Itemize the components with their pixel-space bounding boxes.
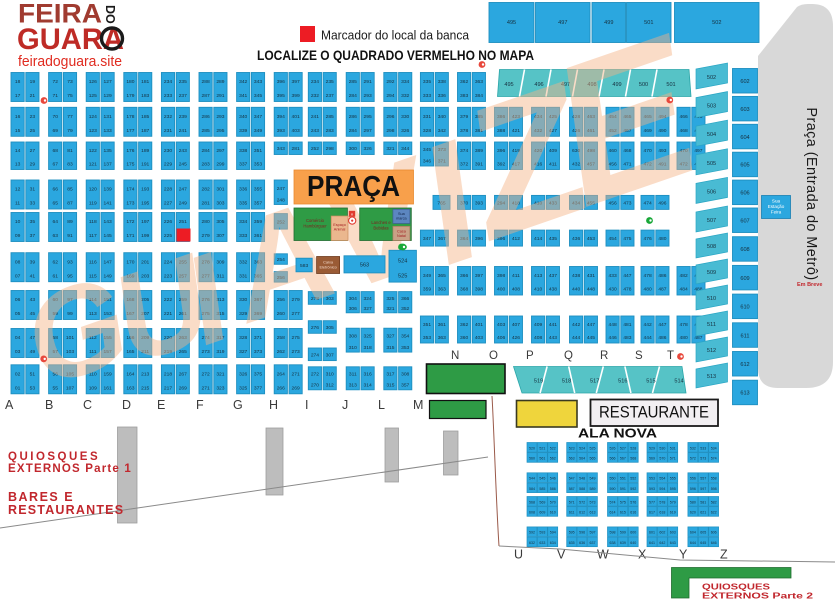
svg-text:Espaço: Espaço — [333, 223, 346, 227]
svg-text:70: 70 — [52, 114, 58, 120]
svg-text:Estação: Estação — [768, 204, 785, 209]
svg-text:617: 617 — [649, 511, 655, 515]
svg-text:195: 195 — [141, 201, 149, 207]
svg-text:317: 317 — [386, 372, 394, 378]
svg-text:610: 610 — [550, 511, 556, 515]
svg-text:13: 13 — [15, 161, 21, 167]
svg-text:289: 289 — [216, 79, 224, 85]
svg-text:33: 33 — [30, 201, 36, 207]
svg-text:633: 633 — [539, 541, 545, 545]
svg-text:443: 443 — [549, 335, 557, 341]
svg-text:233: 233 — [164, 93, 172, 99]
svg-text:604: 604 — [690, 531, 696, 535]
svg-text:360: 360 — [460, 335, 468, 341]
svg-text:393: 393 — [277, 128, 285, 134]
svg-text:547: 547 — [569, 477, 575, 481]
svg-text:401: 401 — [475, 322, 483, 328]
svg-text:Eletrônico: Eletrônico — [319, 264, 336, 269]
svg-text:Sua: Sua — [772, 199, 781, 204]
svg-text:282: 282 — [202, 187, 210, 193]
svg-text:546: 546 — [550, 477, 556, 481]
svg-text:339: 339 — [239, 128, 247, 134]
svg-text:586: 586 — [550, 487, 556, 491]
svg-text:296: 296 — [386, 114, 394, 120]
svg-text:514: 514 — [674, 379, 683, 385]
svg-text:126: 126 — [89, 79, 97, 85]
svg-text:RESTAURANTES: RESTAURANTES — [8, 503, 124, 517]
svg-text:636: 636 — [579, 541, 585, 545]
svg-text:269: 269 — [292, 385, 300, 391]
svg-text:512: 512 — [707, 348, 716, 354]
svg-text:273: 273 — [292, 349, 300, 355]
svg-text:431: 431 — [587, 273, 595, 279]
svg-text:603: 603 — [740, 107, 749, 113]
svg-text:503: 503 — [707, 104, 716, 110]
svg-text:118: 118 — [89, 219, 97, 225]
svg-text:309: 309 — [216, 259, 224, 265]
svg-text:Natal: Natal — [397, 234, 406, 238]
svg-text:409: 409 — [534, 322, 542, 328]
svg-text:645: 645 — [700, 541, 706, 545]
svg-text:528: 528 — [630, 446, 636, 450]
svg-text:621: 621 — [700, 511, 706, 515]
svg-text:124: 124 — [89, 114, 97, 120]
svg-text:522: 522 — [550, 446, 556, 450]
svg-text:01: 01 — [15, 385, 21, 391]
svg-text:87: 87 — [67, 201, 73, 207]
svg-text:599: 599 — [620, 531, 626, 535]
svg-text:349: 349 — [254, 128, 262, 134]
svg-text:12: 12 — [15, 187, 21, 193]
svg-text:284: 284 — [349, 128, 357, 134]
svg-text:J: J — [342, 398, 348, 412]
svg-text:521: 521 — [539, 446, 545, 450]
svg-text:11: 11 — [15, 201, 20, 207]
svg-text:285: 285 — [326, 114, 334, 120]
svg-text:266: 266 — [277, 385, 285, 391]
svg-text:P: P — [526, 350, 534, 362]
svg-text:569: 569 — [539, 500, 545, 504]
svg-text:66: 66 — [52, 187, 58, 193]
svg-text:571: 571 — [670, 457, 676, 461]
svg-text:69: 69 — [52, 128, 58, 134]
svg-text:481: 481 — [623, 322, 631, 328]
svg-text:181: 181 — [141, 79, 149, 85]
svg-text:577: 577 — [649, 500, 655, 504]
svg-text:353: 353 — [401, 345, 409, 351]
svg-text:243: 243 — [179, 148, 187, 154]
svg-text:139: 139 — [104, 187, 112, 193]
svg-text:632: 632 — [529, 541, 535, 545]
svg-text:311: 311 — [349, 372, 357, 378]
svg-text:270: 270 — [311, 383, 319, 389]
svg-text:D: D — [122, 398, 131, 412]
svg-text:480: 480 — [644, 287, 652, 293]
svg-text:I: I — [305, 398, 308, 412]
svg-text:Comércio: Comércio — [306, 218, 325, 223]
svg-text:480: 480 — [658, 236, 666, 242]
svg-text:264: 264 — [277, 372, 285, 378]
svg-text:603: 603 — [670, 531, 676, 535]
svg-text:601: 601 — [649, 531, 655, 535]
svg-text:DO: DO — [103, 5, 117, 24]
svg-text:637: 637 — [590, 541, 596, 545]
svg-text:137: 137 — [104, 161, 112, 167]
svg-text:Sua: Sua — [398, 212, 406, 216]
svg-text:334: 334 — [401, 79, 409, 85]
svg-text:440: 440 — [572, 287, 580, 293]
svg-text:394: 394 — [277, 114, 285, 120]
svg-text:73: 73 — [67, 79, 73, 85]
svg-text:567: 567 — [620, 457, 626, 461]
svg-text:351: 351 — [423, 322, 431, 328]
svg-text:395: 395 — [277, 93, 285, 99]
svg-text:318: 318 — [364, 345, 372, 351]
svg-text:606: 606 — [711, 531, 717, 535]
svg-text:145: 145 — [104, 233, 112, 239]
svg-text:183: 183 — [141, 93, 149, 99]
svg-text:619: 619 — [670, 511, 676, 515]
svg-text:321: 321 — [216, 372, 224, 378]
svg-text:274: 274 — [311, 352, 319, 358]
svg-text:285: 285 — [349, 79, 357, 85]
svg-text:35: 35 — [30, 219, 36, 225]
svg-text:308: 308 — [349, 333, 357, 339]
svg-text:529: 529 — [649, 446, 655, 450]
svg-text:79: 79 — [67, 128, 73, 134]
svg-text:609: 609 — [539, 511, 545, 515]
svg-text:193: 193 — [141, 187, 149, 193]
svg-text:553: 553 — [649, 477, 655, 481]
svg-text:226: 226 — [164, 219, 172, 225]
svg-text:C: C — [83, 398, 92, 412]
svg-text:135: 135 — [104, 148, 112, 154]
svg-text:S: S — [635, 350, 643, 362]
svg-text:438: 438 — [549, 287, 557, 293]
svg-text:BARES E: BARES E — [8, 490, 74, 504]
svg-text:426: 426 — [512, 335, 520, 341]
svg-text:403: 403 — [475, 335, 483, 341]
svg-text:444: 444 — [644, 335, 652, 341]
svg-text:495: 495 — [507, 20, 516, 26]
svg-text:574: 574 — [711, 457, 717, 461]
svg-text:262: 262 — [277, 349, 285, 355]
svg-text:437: 437 — [549, 273, 557, 279]
svg-text:525: 525 — [398, 274, 407, 280]
svg-text:313: 313 — [349, 383, 357, 389]
svg-text:483: 483 — [623, 335, 631, 341]
svg-text:284: 284 — [202, 148, 210, 154]
svg-text:02: 02 — [15, 372, 21, 378]
svg-text:555: 555 — [670, 477, 676, 481]
svg-text:576: 576 — [630, 500, 636, 504]
svg-text:25: 25 — [30, 128, 36, 134]
svg-text:527: 527 — [620, 446, 626, 450]
svg-text:593: 593 — [649, 487, 655, 491]
svg-text:337: 337 — [239, 161, 247, 167]
svg-text:399: 399 — [292, 93, 300, 99]
svg-text:613: 613 — [740, 391, 749, 397]
svg-text:Animal: Animal — [334, 228, 346, 232]
svg-text:M: M — [413, 398, 423, 412]
svg-text:Em Breve: Em Breve — [797, 282, 822, 288]
svg-text:237: 237 — [179, 93, 187, 99]
svg-text:400: 400 — [497, 287, 505, 293]
svg-text:596: 596 — [579, 531, 585, 535]
svg-text:605: 605 — [700, 531, 706, 535]
svg-text:293: 293 — [364, 93, 372, 99]
svg-text:272: 272 — [311, 372, 319, 378]
svg-text:591: 591 — [620, 487, 626, 491]
svg-text:502: 502 — [707, 75, 716, 81]
svg-text:442: 442 — [572, 322, 580, 328]
svg-text:446: 446 — [609, 335, 617, 341]
svg-text:245: 245 — [179, 161, 187, 167]
svg-text:520: 520 — [529, 446, 535, 450]
svg-text:131: 131 — [104, 114, 112, 120]
svg-text:328: 328 — [239, 335, 247, 341]
svg-text:314: 314 — [364, 383, 372, 389]
svg-text:217: 217 — [164, 385, 172, 391]
svg-text:284: 284 — [349, 93, 357, 99]
svg-text:570: 570 — [659, 457, 665, 461]
svg-text:197: 197 — [141, 219, 149, 225]
svg-text:554: 554 — [659, 477, 665, 481]
svg-text:18: 18 — [15, 79, 21, 85]
svg-text:375: 375 — [254, 372, 262, 378]
svg-text:W: W — [597, 548, 609, 562]
svg-text:590: 590 — [610, 487, 616, 491]
svg-text:447: 447 — [587, 322, 595, 328]
svg-text:27: 27 — [30, 148, 36, 154]
svg-text:593: 593 — [539, 531, 545, 535]
svg-text:172: 172 — [126, 219, 134, 225]
svg-text:315: 315 — [386, 345, 394, 351]
svg-text:83: 83 — [67, 161, 73, 167]
svg-text:525: 525 — [590, 446, 596, 450]
svg-text:310: 310 — [326, 372, 334, 378]
svg-text:feiradoguara.site: feiradoguara.site — [18, 54, 122, 70]
svg-text:Y: Y — [679, 548, 688, 562]
svg-text:A: A — [5, 398, 14, 412]
svg-text:620: 620 — [690, 511, 696, 515]
svg-text:568: 568 — [529, 500, 535, 504]
svg-text:234: 234 — [311, 79, 319, 85]
svg-text:Feira: Feira — [771, 210, 782, 215]
svg-text:343: 343 — [277, 146, 285, 152]
svg-text:325: 325 — [239, 385, 247, 391]
svg-text:476: 476 — [644, 236, 652, 242]
svg-text:232: 232 — [164, 114, 172, 120]
svg-text:362: 362 — [460, 322, 468, 328]
svg-text:308: 308 — [401, 372, 409, 378]
svg-text:640: 640 — [630, 541, 636, 545]
svg-text:PRAÇA: PRAÇA — [307, 171, 400, 203]
svg-text:81: 81 — [67, 148, 73, 154]
svg-text:37: 37 — [30, 233, 36, 239]
svg-text:285: 285 — [202, 128, 210, 134]
svg-text:269: 269 — [179, 385, 187, 391]
svg-text:335: 335 — [423, 79, 431, 85]
svg-text:125: 125 — [89, 93, 97, 99]
svg-text:287: 287 — [202, 93, 210, 99]
svg-text:573: 573 — [590, 500, 596, 504]
svg-text:605: 605 — [740, 163, 749, 169]
svg-text:312: 312 — [326, 383, 334, 389]
svg-text:575: 575 — [620, 500, 626, 504]
svg-text:548: 548 — [579, 477, 585, 481]
svg-text:325: 325 — [364, 333, 372, 339]
svg-text:571: 571 — [569, 500, 575, 504]
svg-text:397: 397 — [292, 79, 300, 85]
svg-text:615: 615 — [620, 511, 626, 515]
svg-text:297: 297 — [364, 128, 372, 134]
svg-text:178: 178 — [126, 114, 134, 120]
svg-text:447: 447 — [658, 322, 666, 328]
svg-text:558: 558 — [711, 477, 717, 481]
svg-text:618: 618 — [659, 511, 665, 515]
svg-text:L: L — [378, 398, 385, 412]
svg-text:563: 563 — [360, 262, 369, 268]
svg-text:447: 447 — [623, 273, 631, 279]
svg-text:294: 294 — [386, 93, 394, 99]
svg-text:241: 241 — [311, 114, 319, 120]
svg-text:15: 15 — [15, 128, 21, 134]
svg-text:588: 588 — [579, 487, 585, 491]
svg-text:174: 174 — [126, 187, 134, 193]
svg-text:281: 281 — [292, 146, 300, 152]
svg-text:235: 235 — [326, 79, 334, 85]
svg-text:F: F — [196, 398, 204, 412]
svg-text:644: 644 — [690, 541, 696, 545]
svg-text:408: 408 — [512, 287, 520, 293]
svg-text:230: 230 — [164, 148, 172, 154]
svg-text:316: 316 — [364, 372, 372, 378]
svg-text:583: 583 — [300, 263, 308, 269]
svg-text:611: 611 — [741, 333, 750, 339]
svg-text:609: 609 — [740, 276, 749, 282]
svg-text:502: 502 — [712, 20, 721, 26]
svg-text:123: 123 — [89, 128, 97, 134]
svg-text:448: 448 — [609, 322, 617, 328]
svg-text:565: 565 — [590, 457, 596, 461]
svg-text:574: 574 — [610, 500, 616, 504]
svg-text:487: 487 — [694, 335, 702, 341]
svg-text:14: 14 — [15, 148, 21, 154]
svg-text:486: 486 — [658, 335, 666, 341]
svg-text:487: 487 — [658, 287, 666, 293]
svg-text:03: 03 — [15, 349, 21, 355]
svg-text:550: 550 — [610, 477, 616, 481]
svg-text:×: × — [351, 212, 354, 217]
svg-text:Praça (Entrada do Metrô): Praça (Entrada do Metrô) — [803, 107, 819, 280]
svg-text:519: 519 — [534, 379, 543, 385]
svg-text:594: 594 — [659, 487, 665, 491]
svg-text:53: 53 — [30, 385, 36, 391]
svg-text:433: 433 — [609, 273, 617, 279]
svg-text:141: 141 — [104, 201, 112, 207]
svg-text:10: 10 — [15, 219, 21, 225]
svg-text:592: 592 — [630, 487, 636, 491]
svg-text:641: 641 — [649, 541, 655, 545]
svg-text:T: T — [667, 350, 674, 362]
svg-text:515: 515 — [646, 379, 655, 385]
svg-text:286: 286 — [349, 114, 357, 120]
svg-text:611: 611 — [569, 511, 575, 515]
svg-text:616: 616 — [630, 511, 636, 515]
svg-text:342: 342 — [239, 79, 247, 85]
svg-text:LOCALIZE O QUADRADO VERMELHO N: LOCALIZE O QUADRADO VERMELHO NO MAPA — [257, 47, 534, 63]
svg-text:EXTERNOS Parte 1: EXTERNOS Parte 1 — [8, 463, 132, 475]
svg-text:606: 606 — [740, 191, 749, 197]
svg-text:120: 120 — [89, 187, 97, 193]
svg-text:643: 643 — [670, 541, 676, 545]
svg-text:614: 614 — [610, 511, 616, 515]
svg-text:573: 573 — [700, 457, 706, 461]
svg-text:510: 510 — [707, 296, 716, 302]
svg-text:361: 361 — [438, 322, 446, 328]
svg-text:597: 597 — [700, 487, 706, 491]
svg-text:EXTERNOS Parte 2: EXTERNOS Parte 2 — [702, 591, 813, 600]
svg-text:301: 301 — [216, 187, 224, 193]
svg-text:602: 602 — [659, 531, 665, 535]
svg-text:587: 587 — [569, 487, 575, 491]
svg-text:562: 562 — [550, 457, 556, 461]
svg-text:85: 85 — [67, 187, 73, 193]
svg-text:171: 171 — [126, 233, 134, 239]
svg-text:363: 363 — [438, 335, 446, 341]
svg-text:518: 518 — [562, 379, 571, 385]
svg-text:568: 568 — [630, 457, 636, 461]
svg-text:295: 295 — [364, 114, 372, 120]
svg-text:353: 353 — [423, 335, 431, 341]
svg-text:191: 191 — [141, 161, 149, 167]
svg-text:323: 323 — [216, 385, 224, 391]
svg-text:604: 604 — [740, 135, 749, 141]
svg-text:X: X — [638, 548, 647, 562]
svg-text:523: 523 — [569, 446, 575, 450]
svg-text:595: 595 — [670, 487, 676, 491]
svg-text:177: 177 — [126, 128, 134, 134]
svg-text:288: 288 — [202, 79, 210, 85]
svg-text:582: 582 — [711, 500, 717, 504]
svg-text:180: 180 — [126, 79, 134, 85]
svg-text:560: 560 — [529, 457, 535, 461]
svg-text:143: 143 — [104, 219, 112, 225]
svg-text:581: 581 — [700, 500, 706, 504]
svg-text:445: 445 — [587, 335, 595, 341]
svg-text:229: 229 — [164, 161, 172, 167]
svg-text:271: 271 — [292, 372, 300, 378]
svg-text:444: 444 — [572, 335, 580, 341]
svg-text:551: 551 — [620, 477, 626, 481]
svg-text:271: 271 — [202, 385, 210, 391]
svg-text:406: 406 — [497, 335, 505, 341]
svg-text:292: 292 — [386, 79, 394, 85]
svg-text:252: 252 — [311, 146, 319, 152]
svg-text:517: 517 — [590, 379, 599, 385]
svg-text:341: 341 — [239, 93, 247, 99]
svg-text:511: 511 — [707, 322, 716, 328]
svg-text:Marcador do local da banca: Marcador do local da banca — [321, 28, 470, 43]
svg-text:613: 613 — [590, 511, 596, 515]
svg-text:448: 448 — [587, 287, 595, 293]
svg-text:612: 612 — [579, 511, 585, 515]
svg-text:234: 234 — [164, 79, 172, 85]
svg-text:608: 608 — [529, 511, 535, 515]
svg-text:410: 410 — [534, 287, 542, 293]
svg-text:561: 561 — [539, 457, 545, 461]
